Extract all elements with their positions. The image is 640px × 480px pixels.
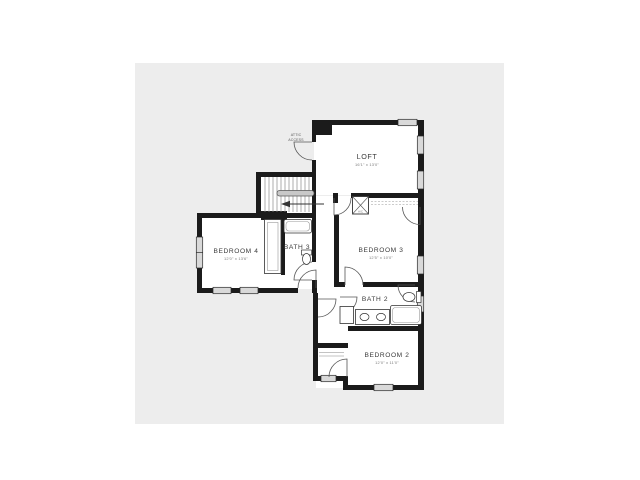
room-label-bedroom3: BEDROOM 3 xyxy=(359,247,404,254)
toilet-bath3 xyxy=(303,254,311,265)
room-dims-loft: 16'1" x 13'0" xyxy=(355,162,379,167)
window xyxy=(240,287,258,293)
toilet-bath2 xyxy=(403,293,415,302)
floorplan-svg: ATTIC ACCESS LOFT 16'1" x 13'0" BEDROOM … xyxy=(135,63,504,424)
handrail xyxy=(277,191,314,197)
room-label-loft: LOFT xyxy=(357,152,378,161)
toilet-tank-bath2 xyxy=(417,292,422,303)
room-dims-bedroom2: 12'0" x 11'0" xyxy=(375,360,399,365)
room-dims-bedroom3: 12'5" x 10'0" xyxy=(369,255,393,260)
bathtub-bath2 xyxy=(391,306,422,325)
window xyxy=(417,136,423,154)
floorplan-panel: ATTIC ACCESS LOFT 16'1" x 13'0" BEDROOM … xyxy=(135,63,504,424)
window xyxy=(374,384,393,390)
room-label-bedroom4: BEDROOM 4 xyxy=(214,248,259,255)
attic-access-label-line2: ACCESS xyxy=(288,138,304,142)
window xyxy=(321,375,336,381)
ac-closet-label: A/C xyxy=(358,210,364,214)
window xyxy=(417,256,423,274)
room-label-bath3: BATH 3 xyxy=(284,244,310,251)
room-label-bath2: BATH 2 xyxy=(362,296,388,303)
room-dims-bedroom4: 12'0" x 13'6" xyxy=(224,256,248,261)
vanity-bath2 xyxy=(356,310,390,325)
window xyxy=(398,119,417,125)
attic-access-label-line1: ATTIC xyxy=(291,133,302,137)
room-label-bedroom2: BEDROOM 2 xyxy=(365,352,410,359)
window xyxy=(417,171,423,189)
closet-bedroom4 xyxy=(265,220,282,274)
linen-closet-bath2 xyxy=(340,307,354,324)
door-arc-attic xyxy=(294,142,312,160)
window xyxy=(213,287,231,293)
